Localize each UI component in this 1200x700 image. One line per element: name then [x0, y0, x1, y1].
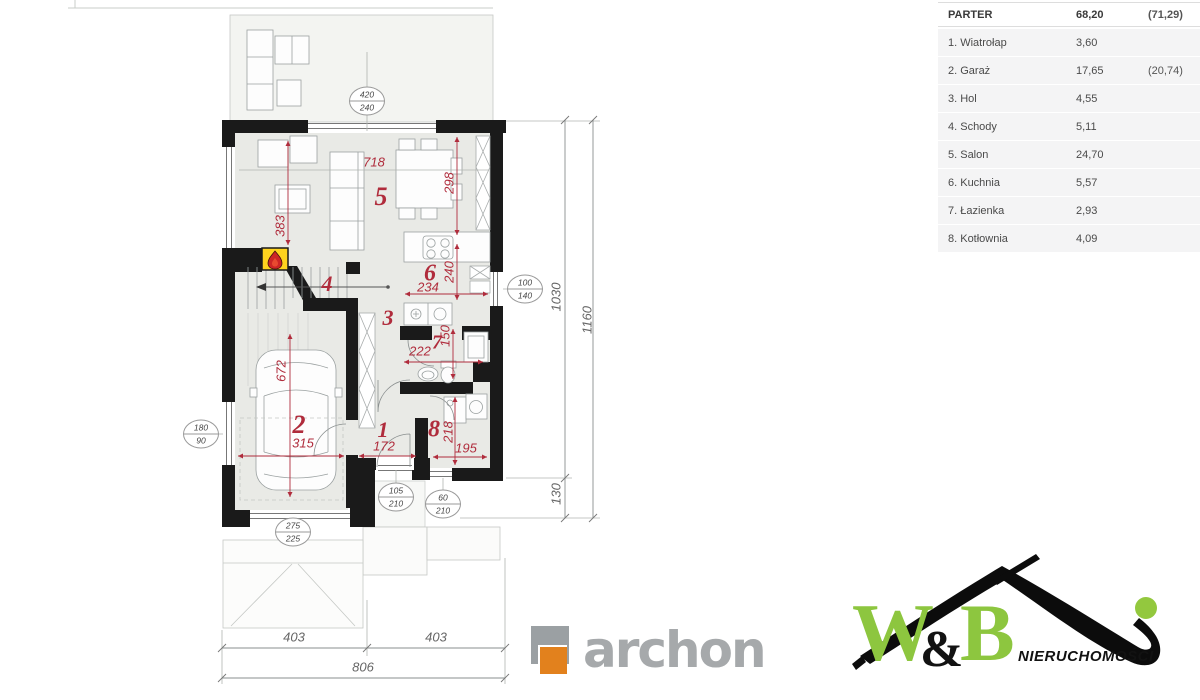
table-row-header: PARTER 68,20 (71,29): [938, 2, 1200, 27]
table-row: 1. Wiatrołap 3,60: [938, 29, 1200, 56]
table-row: 3. Hol 4,55: [938, 85, 1200, 112]
table-row: 7. Łazienka 2,93: [938, 197, 1200, 224]
badge-garage-window: 180 90: [183, 420, 219, 449]
badge-entrance-door: 105 210: [378, 483, 414, 512]
floor-area-gross: (71,29): [1148, 9, 1200, 21]
floorplan-drawing: 1 2 3 4 5 6 7 8 718 298 383 234 240 222 …: [0, 0, 940, 700]
table-row: 6. Kuchnia 5,57: [938, 169, 1200, 196]
floor-name: PARTER: [948, 9, 1076, 21]
floor-area: 68,20: [1076, 9, 1148, 21]
fireplace-icon: [262, 248, 288, 270]
wb-subtitle: NIERUCHOMOŚCI: [1018, 648, 1154, 665]
badge-garage-door: 275 225: [275, 518, 311, 547]
badge-terrace-door: 420 240: [349, 87, 385, 116]
wb-ampersand: &: [920, 624, 963, 676]
table-row: 8. Kotłownia 4,09: [938, 225, 1200, 252]
badge-boiler-door: 60 210: [425, 490, 461, 519]
archon-logo: archon: [525, 620, 795, 682]
room-area-table: PARTER 68,20 (71,29) 1. Wiatrołap 3,60 2…: [938, 2, 1200, 253]
table-row: 4. Schody 5,11: [938, 113, 1200, 140]
badge-kitchen-window: 100 140: [507, 275, 543, 304]
archon-wordmark: archon: [583, 621, 765, 679]
wb-letter-b: B: [960, 592, 1015, 674]
lot-boundary: [68, 0, 493, 8]
floorplan-linework: [0, 0, 940, 700]
floorplan-page: 1 2 3 4 5 6 7 8 718 298 383 234 240 222 …: [0, 0, 1200, 700]
archon-logo-orange-square-icon: [538, 645, 567, 674]
wb-nieruchomosci-logo: W & B NIERUCHOMOŚCI: [850, 552, 1198, 700]
table-row: 5. Salon 24,70: [938, 141, 1200, 168]
table-row: 2. Garaż 17,65 (20,74): [938, 57, 1200, 84]
